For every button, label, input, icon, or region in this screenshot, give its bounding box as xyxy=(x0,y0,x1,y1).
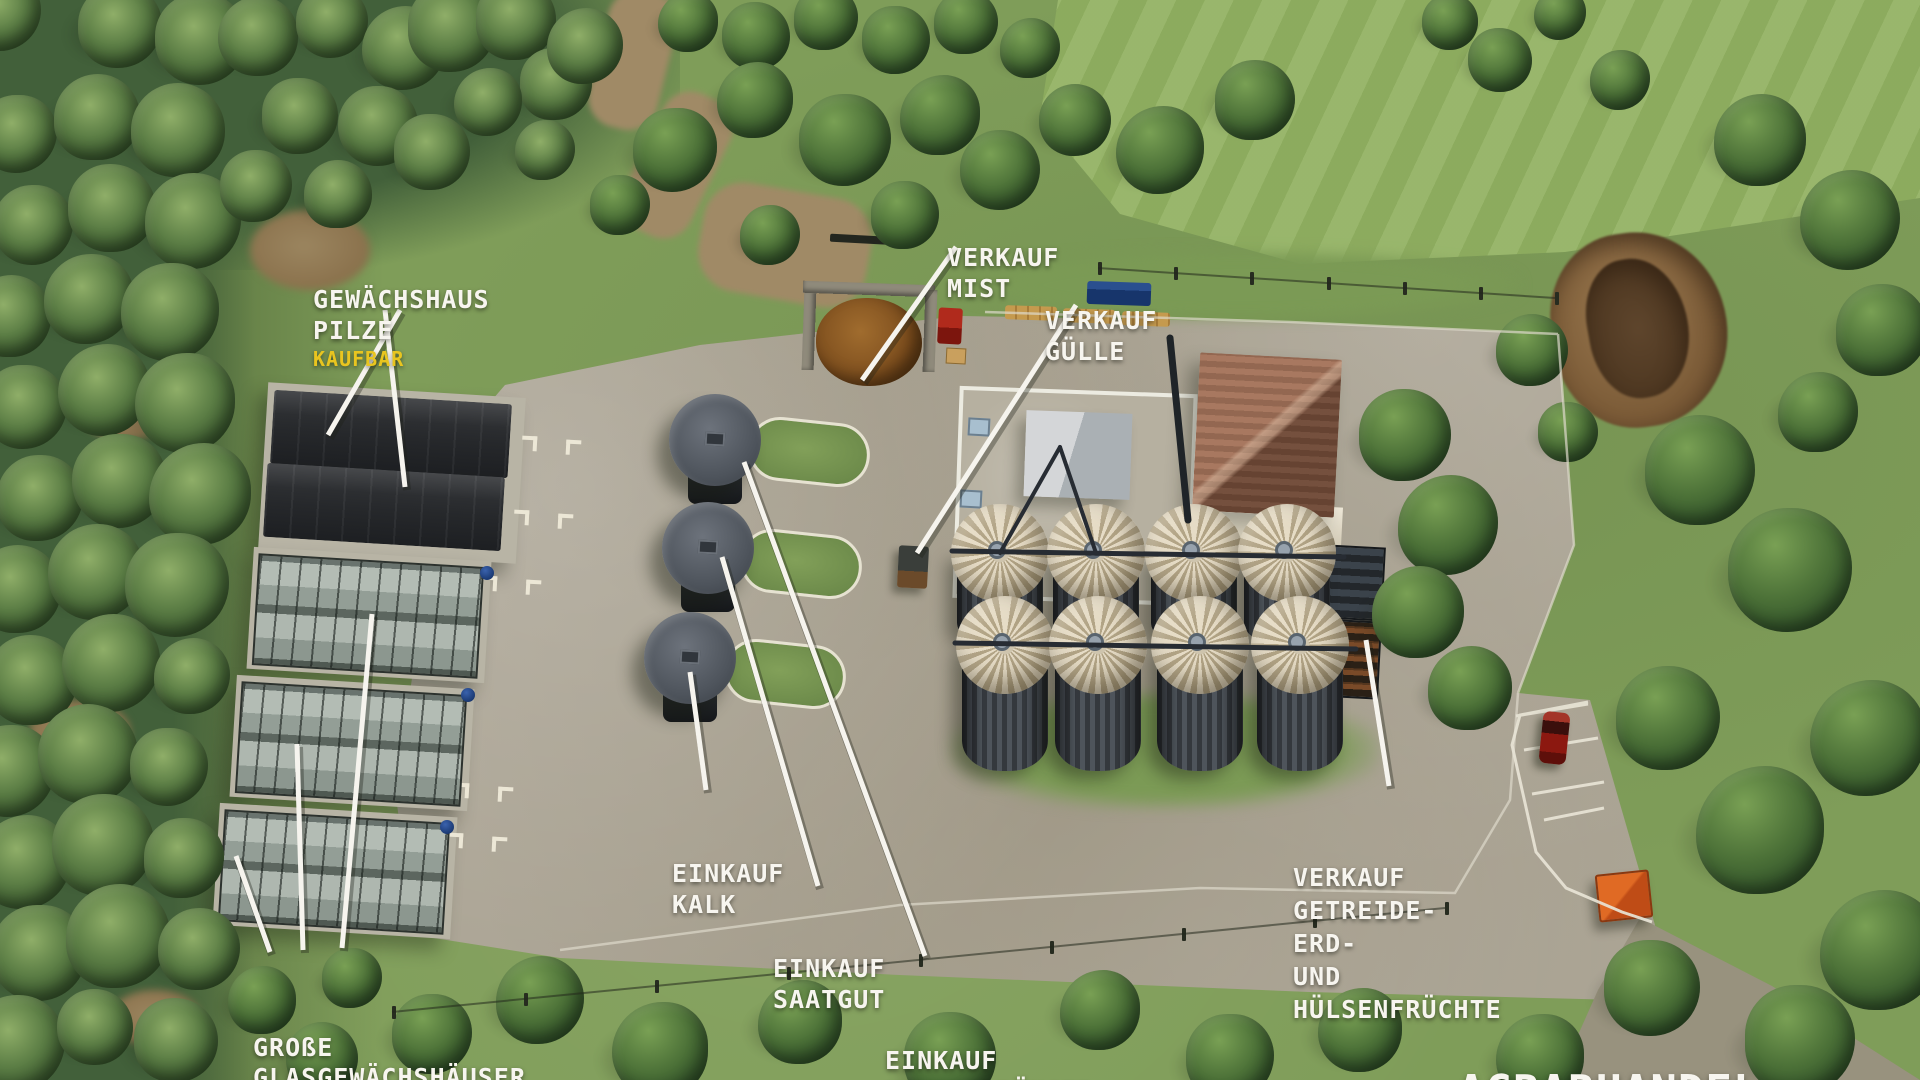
conifer-tree xyxy=(38,704,138,804)
annotation-text: GEWÄCHSHAUS xyxy=(313,284,490,315)
annotation-text: GROßE xyxy=(253,1033,333,1063)
annotation-text: MIST xyxy=(947,273,1011,304)
fence-post xyxy=(919,954,923,967)
conifer-tree xyxy=(134,998,218,1080)
deciduous-tree xyxy=(1745,985,1855,1080)
deciduous-tree xyxy=(1836,284,1920,376)
corner-marker xyxy=(558,514,574,530)
grain-silo-cap xyxy=(1084,541,1102,559)
gray-shed xyxy=(1024,410,1133,500)
conifer-tree xyxy=(262,78,338,154)
fence-post xyxy=(392,1006,396,1019)
conifer-tree xyxy=(135,353,235,453)
round-silo-hatch xyxy=(705,431,726,446)
annotation-gewaechshaus-pilze: GEWÄCHSHAUS PILZE KAUFBAR xyxy=(313,222,377,377)
deciduous-tree xyxy=(1039,84,1111,156)
annotation-text: VERKAUF xyxy=(1293,861,1405,894)
annotation-einkauf-saatgut: EINKAUF SAATGUT xyxy=(773,891,837,1015)
corner-marker xyxy=(492,837,508,853)
conifer-tree xyxy=(218,0,298,76)
grain-silo-cap xyxy=(1182,541,1200,559)
round-silo-hatch xyxy=(680,649,701,664)
glass-greenhouse-3 xyxy=(218,809,450,935)
grain-silo-cap xyxy=(1275,541,1293,559)
glass-greenhouse-1 xyxy=(252,553,484,679)
deciduous-tree xyxy=(1060,970,1140,1050)
blue-marker xyxy=(440,820,454,834)
fence-post xyxy=(1555,292,1559,305)
skylight xyxy=(960,489,983,508)
fence-post xyxy=(1174,267,1178,280)
annotation-text: PILZE xyxy=(313,315,393,346)
deciduous-tree xyxy=(1538,402,1598,462)
annotation-text: EINKAUF xyxy=(885,1045,997,1076)
annotation-verkauf-getreide: VERKAUF GETREIDE- ERD- UND HÜLSENFRÜCHTE xyxy=(1293,795,1357,1026)
fence-post xyxy=(655,980,659,993)
map-title: AGRARHANDEL MEYER UND MAYER xyxy=(1458,962,1568,1080)
mushroom-greenhouse-roof-b xyxy=(263,463,505,551)
grain-silo-cap xyxy=(1086,633,1104,651)
annotation-text: GETREIDE- xyxy=(1293,894,1437,927)
deciduous-tree xyxy=(1714,94,1806,186)
annotation-text: GLASGEWÄCHSHÄUSER xyxy=(253,1063,526,1080)
deciduous-tree xyxy=(1372,566,1464,658)
fence-post xyxy=(1250,272,1254,285)
fence-post xyxy=(1182,928,1186,941)
blue-marker xyxy=(461,688,475,702)
glass-greenhouse-2 xyxy=(235,681,467,807)
annotation-text: SAATGUT xyxy=(773,984,885,1015)
corner-marker xyxy=(448,833,464,849)
deciduous-tree xyxy=(1215,60,1295,140)
annotation-text: KALK xyxy=(672,889,736,920)
grain-silo-cap xyxy=(993,633,1011,651)
annotation-verkauf-guelle: VERKAUF GÜLLE xyxy=(1045,243,1109,367)
conifer-tree xyxy=(68,164,156,252)
annotation-text: GÜLLE xyxy=(1045,336,1125,367)
fence-post xyxy=(1403,282,1407,295)
deciduous-tree xyxy=(1616,666,1720,770)
manure-heap xyxy=(816,298,922,386)
corner-marker xyxy=(498,787,514,803)
conifer-tree xyxy=(149,443,251,545)
fence-post xyxy=(524,993,528,1006)
corner-marker xyxy=(522,436,538,452)
annotation-text: EINKAUF xyxy=(672,858,784,889)
corner-marker xyxy=(526,580,542,596)
red-loader xyxy=(937,307,963,344)
deciduous-tree xyxy=(722,2,790,70)
annotation-text: EINKAUF xyxy=(773,953,885,984)
round-silo-hatch xyxy=(698,539,719,554)
grain-silo-cap xyxy=(1188,633,1206,651)
fence-post xyxy=(1445,902,1449,915)
corner-marker xyxy=(566,440,582,456)
orange-shed xyxy=(1595,869,1654,922)
conifer-tree xyxy=(54,74,140,160)
pallet xyxy=(946,347,967,364)
deciduous-tree xyxy=(1428,646,1512,730)
conifer-tree xyxy=(304,160,372,228)
annotation-text: ERD- xyxy=(1293,927,1357,960)
blue-marker xyxy=(480,566,494,580)
conifer-tree xyxy=(131,83,225,177)
annotation-text: VERKAUF xyxy=(1045,305,1157,336)
deciduous-tree xyxy=(1359,389,1451,481)
farming-map-overview: GEWÄCHSHAUS PILZE KAUFBAR VERKAUF MIST V… xyxy=(0,0,1920,1080)
annotation-glasgewaechshaeuser: GROßE GLASGEWÄCHSHÄUSER SEPERAT KAUFBAR xyxy=(253,973,317,1080)
annotation-note: KAUFBAR xyxy=(313,346,404,372)
main-building-roof xyxy=(1192,352,1342,517)
skylight xyxy=(968,417,991,436)
red-car xyxy=(1538,711,1570,766)
annotation-einkauf-kalk: EINKAUF KALK xyxy=(672,796,736,920)
annotation-text: VERKAUF xyxy=(947,242,1059,273)
deciduous-tree xyxy=(1496,314,1568,386)
conifer-tree xyxy=(57,989,133,1065)
deciduous-tree xyxy=(1645,415,1755,525)
fence-post xyxy=(1327,277,1331,290)
deciduous-tree xyxy=(1468,28,1532,92)
deciduous-tree xyxy=(717,62,793,138)
annotation-text: MINERALDÜNGER xyxy=(885,1076,1094,1080)
fence-post xyxy=(1479,287,1483,300)
fence-post xyxy=(1050,941,1054,954)
annotation-einkauf-mineralduenger: EINKAUF MINERALDÜNGER xyxy=(885,983,949,1080)
map-title-line: AGRARHANDEL xyxy=(1458,1066,1760,1080)
grain-silo-cap xyxy=(988,541,1006,559)
deciduous-tree xyxy=(862,6,930,74)
annotation-verkauf-mist: VERKAUF MIST xyxy=(947,180,1011,304)
slurry-pump-station xyxy=(897,545,929,589)
corner-marker xyxy=(514,510,530,526)
grain-silo-cap xyxy=(1288,633,1306,651)
deciduous-tree xyxy=(900,75,980,155)
deciduous-tree xyxy=(1604,940,1700,1036)
conifer-tree xyxy=(394,114,470,190)
deciduous-tree xyxy=(1778,372,1858,452)
annotation-text: UND xyxy=(1293,960,1341,993)
